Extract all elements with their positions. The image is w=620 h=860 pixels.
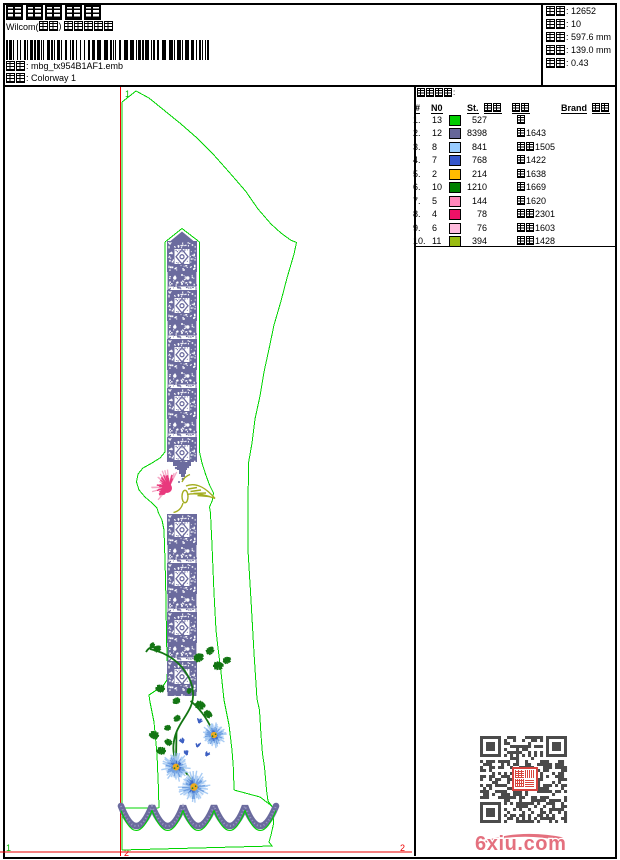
svg-text:2: 2 <box>400 843 405 853</box>
svg-text:6xiu.com: 6xiu.com <box>475 833 567 855</box>
svg-text:1: 1 <box>6 843 11 853</box>
